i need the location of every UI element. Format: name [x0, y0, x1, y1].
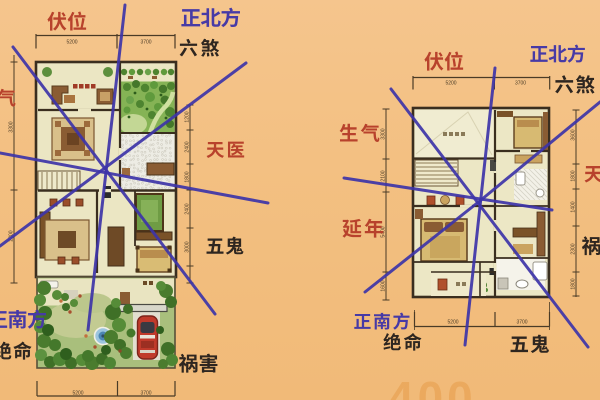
svg-text:5200: 5200 — [447, 320, 458, 326]
svg-text:2100: 2100 — [381, 170, 387, 181]
svg-text:5200: 5200 — [66, 40, 77, 46]
svg-text:1600: 1600 — [381, 280, 387, 291]
svg-text:3700: 3700 — [140, 40, 151, 46]
svg-text:3600: 3600 — [571, 129, 577, 140]
svg-text:1800: 1800 — [571, 170, 577, 181]
svg-text:1400: 1400 — [571, 201, 577, 212]
svg-text:2400: 2400 — [185, 203, 191, 214]
svg-text:2400: 2400 — [185, 141, 191, 152]
svg-text:5200: 5200 — [72, 391, 83, 397]
svg-text:3300: 3300 — [9, 121, 15, 132]
svg-text:1800: 1800 — [185, 171, 191, 182]
svg-text:3300: 3300 — [381, 128, 387, 139]
svg-text:5200: 5200 — [445, 81, 456, 87]
svg-text:1200: 1200 — [185, 111, 191, 122]
svg-text:1800: 1800 — [571, 278, 577, 289]
svg-text:3700: 3700 — [516, 320, 527, 326]
svg-text:2300: 2300 — [571, 243, 577, 254]
svg-text:400: 400 — [388, 372, 477, 400]
svg-text:3700: 3700 — [140, 391, 151, 397]
svg-text:3700: 3700 — [515, 81, 526, 87]
svg-text:3000: 3000 — [185, 241, 191, 252]
